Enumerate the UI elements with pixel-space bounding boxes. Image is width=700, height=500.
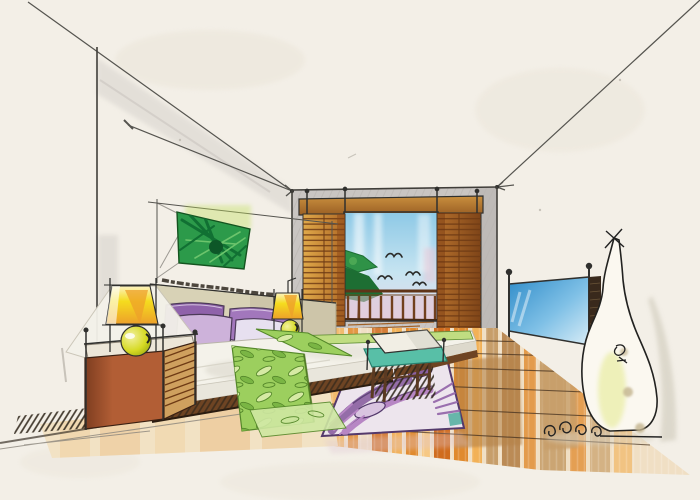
shutter-right bbox=[437, 213, 481, 332]
sketch-page bbox=[0, 0, 700, 500]
bedroom-sketch-canvas bbox=[0, 0, 700, 500]
window-view bbox=[342, 212, 438, 329]
